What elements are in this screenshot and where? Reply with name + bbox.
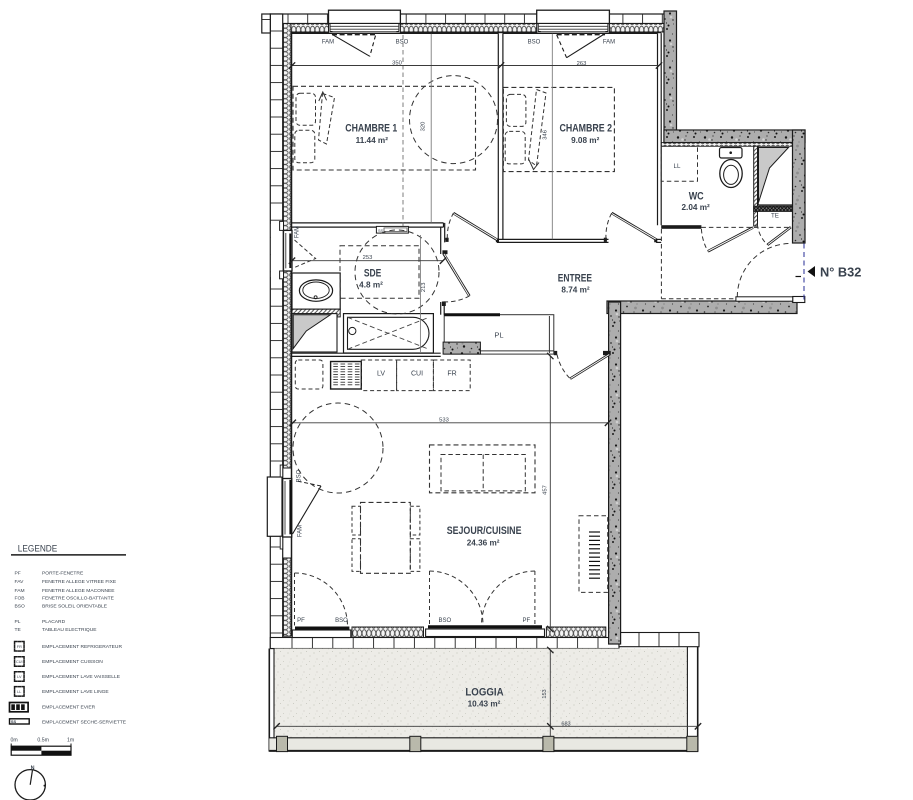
svg-text:BSO: BSO bbox=[396, 39, 409, 45]
svg-text:11.44 m²: 11.44 m² bbox=[356, 136, 389, 145]
svg-text:9.08 m²: 9.08 m² bbox=[571, 136, 599, 145]
svg-text:BRISE SOLEIL ORIENTABLE: BRISE SOLEIL ORIENTABLE bbox=[42, 604, 108, 610]
svg-text:EMPLACEMENT REFRIGERATEUR: EMPLACEMENT REFRIGERATEUR bbox=[42, 644, 122, 650]
svg-text:SDE: SDE bbox=[364, 268, 382, 280]
svg-text:TABLEAU ELECTRIQUE: TABLEAU ELECTRIQUE bbox=[42, 627, 97, 633]
svg-text:153: 153 bbox=[542, 689, 548, 698]
svg-text:FAM: FAM bbox=[295, 226, 301, 238]
svg-text:LV: LV bbox=[17, 675, 22, 679]
svg-text:N° B32: N° B32 bbox=[820, 264, 861, 279]
svg-text:PF: PF bbox=[297, 618, 305, 624]
svg-text:BSO: BSO bbox=[528, 39, 541, 45]
svg-text:10.43 m²: 10.43 m² bbox=[468, 700, 501, 709]
svg-text:PLACARD: PLACARD bbox=[42, 619, 66, 625]
svg-text:SS: SS bbox=[11, 719, 17, 724]
svg-text:PL: PL bbox=[494, 331, 503, 340]
svg-text:0m: 0m bbox=[11, 738, 18, 744]
svg-text:LL: LL bbox=[17, 690, 21, 694]
svg-text:PL: PL bbox=[15, 619, 21, 625]
svg-text:8.74 m²: 8.74 m² bbox=[561, 286, 589, 295]
svg-text:EMPLACEMENT SECHE-SERVIETTE: EMPLACEMENT SECHE-SERVIETTE bbox=[42, 719, 127, 725]
svg-text:BSO: BSO bbox=[438, 618, 451, 624]
svg-text:LOGGIA: LOGGIA bbox=[465, 686, 503, 698]
svg-text:253: 253 bbox=[363, 255, 373, 261]
svg-text:346: 346 bbox=[542, 130, 548, 140]
svg-text:FAV: FAV bbox=[15, 579, 25, 585]
svg-text:LEGENDE: LEGENDE bbox=[18, 544, 58, 554]
svg-text:FR: FR bbox=[17, 645, 22, 649]
svg-text:FAM: FAM bbox=[322, 39, 334, 45]
svg-text:LL: LL bbox=[674, 163, 681, 170]
svg-text:213: 213 bbox=[421, 282, 427, 292]
svg-text:0.5m: 0.5m bbox=[37, 738, 49, 744]
svg-text:FOB: FOB bbox=[15, 596, 25, 602]
svg-text:CHAMBRE 2: CHAMBRE 2 bbox=[560, 123, 613, 135]
svg-text:EMPLACEMENT LAVE VAISSELLE: EMPLACEMENT LAVE VAISSELLE bbox=[42, 674, 121, 680]
svg-text:533: 533 bbox=[439, 418, 449, 424]
svg-text:LV: LV bbox=[377, 371, 385, 378]
svg-text:SEJOUR/CUISINE: SEJOUR/CUISINE bbox=[447, 525, 522, 537]
svg-text:TE: TE bbox=[15, 627, 22, 633]
svg-text:320: 320 bbox=[421, 122, 427, 132]
svg-text:263: 263 bbox=[577, 61, 587, 67]
svg-text:FENETRE ALLEGE MACONNEE: FENETRE ALLEGE MACONNEE bbox=[42, 588, 115, 594]
svg-text:N: N bbox=[31, 765, 35, 771]
svg-text:FAM: FAM bbox=[15, 588, 25, 594]
svg-text:BSO: BSO bbox=[335, 618, 348, 624]
svg-text:WC: WC bbox=[689, 191, 704, 203]
svg-text:EMPLACEMENT EVIER: EMPLACEMENT EVIER bbox=[42, 704, 96, 710]
svg-text:FENETRE ALLEGE VITREE FIXE: FENETRE ALLEGE VITREE FIXE bbox=[42, 579, 117, 585]
svg-text:FAM: FAM bbox=[298, 525, 304, 537]
svg-text:FR: FR bbox=[447, 371, 456, 378]
svg-text:EMPLACEMENT CUISSON: EMPLACEMENT CUISSON bbox=[42, 659, 103, 665]
svg-text:ENTREE: ENTREE bbox=[558, 272, 592, 284]
svg-text:CHAMBRE 1: CHAMBRE 1 bbox=[345, 123, 397, 135]
svg-text:CUI: CUI bbox=[16, 660, 23, 664]
svg-text:PF: PF bbox=[522, 618, 530, 624]
svg-text:350: 350 bbox=[392, 60, 402, 66]
svg-text:CUI: CUI bbox=[411, 371, 423, 378]
svg-text:FAM: FAM bbox=[603, 39, 615, 45]
svg-text:457: 457 bbox=[542, 485, 548, 495]
svg-text:4.8 m²: 4.8 m² bbox=[359, 280, 383, 289]
svg-text:BSO: BSO bbox=[15, 604, 26, 610]
svg-text:PORTE-FENETRE: PORTE-FENETRE bbox=[42, 571, 84, 577]
svg-text:PF: PF bbox=[15, 571, 21, 577]
svg-text:FENETRE OSCILLO-BATTANTE: FENETRE OSCILLO-BATTANTE bbox=[42, 596, 115, 602]
svg-text:EMPLACEMENT LAVE LINGE: EMPLACEMENT LAVE LINGE bbox=[42, 689, 109, 695]
svg-text:2.04 m²: 2.04 m² bbox=[681, 203, 709, 212]
svg-text:1m: 1m bbox=[67, 738, 74, 744]
svg-text:683: 683 bbox=[561, 721, 570, 727]
svg-text:TE: TE bbox=[771, 212, 779, 219]
svg-text:24.36 m²: 24.36 m² bbox=[467, 539, 500, 548]
